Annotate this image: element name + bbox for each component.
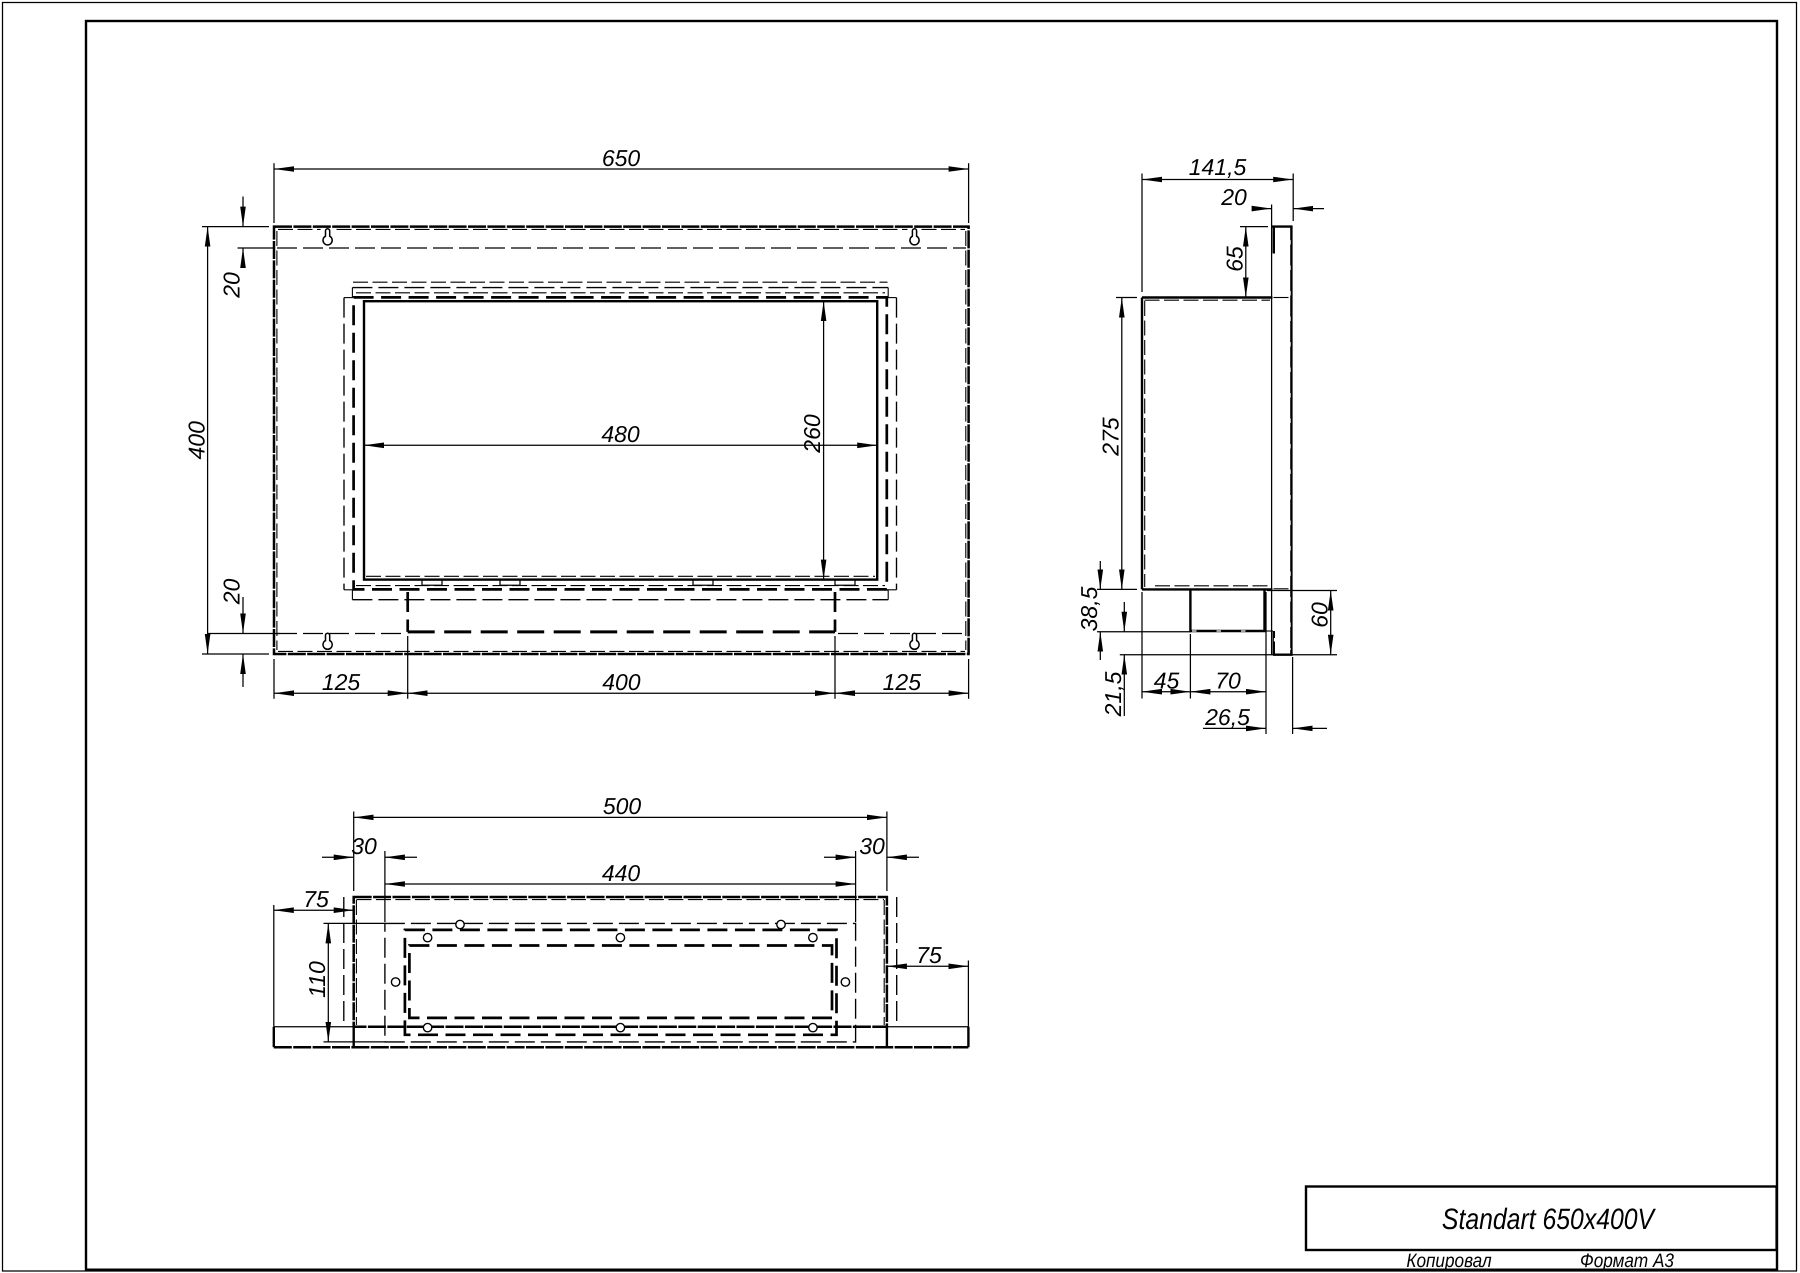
svg-text:21,5: 21,5 (1100, 671, 1126, 717)
svg-text:60: 60 (1306, 602, 1332, 628)
svg-text:Standart 650x400V: Standart 650x400V (1442, 1203, 1656, 1236)
svg-text:480: 480 (601, 421, 640, 447)
svg-text:20: 20 (219, 579, 245, 606)
svg-text:45: 45 (1154, 668, 1180, 694)
svg-text:26,5: 26,5 (1204, 704, 1250, 730)
svg-text:Копировал: Копировал (1406, 1250, 1491, 1272)
svg-text:141,5: 141,5 (1189, 154, 1247, 180)
svg-text:20: 20 (219, 272, 245, 299)
svg-text:125: 125 (883, 669, 922, 695)
svg-text:75: 75 (303, 886, 329, 912)
svg-text:110: 110 (304, 961, 330, 998)
svg-text:650: 650 (602, 145, 641, 171)
svg-text:440: 440 (602, 860, 641, 886)
svg-text:400: 400 (602, 669, 641, 695)
svg-text:400: 400 (183, 421, 209, 460)
svg-text:500: 500 (603, 793, 642, 819)
svg-text:260: 260 (799, 414, 825, 454)
svg-text:125: 125 (322, 669, 361, 695)
svg-text:Формат А3: Формат А3 (1580, 1250, 1674, 1272)
svg-text:70: 70 (1215, 668, 1241, 694)
svg-text:65: 65 (1221, 246, 1247, 272)
svg-text:275: 275 (1097, 417, 1123, 457)
svg-text:30: 30 (351, 833, 377, 859)
svg-text:75: 75 (916, 942, 942, 968)
svg-text:30: 30 (859, 833, 885, 859)
svg-text:38,5: 38,5 (1076, 586, 1102, 631)
svg-text:20: 20 (1220, 184, 1247, 210)
